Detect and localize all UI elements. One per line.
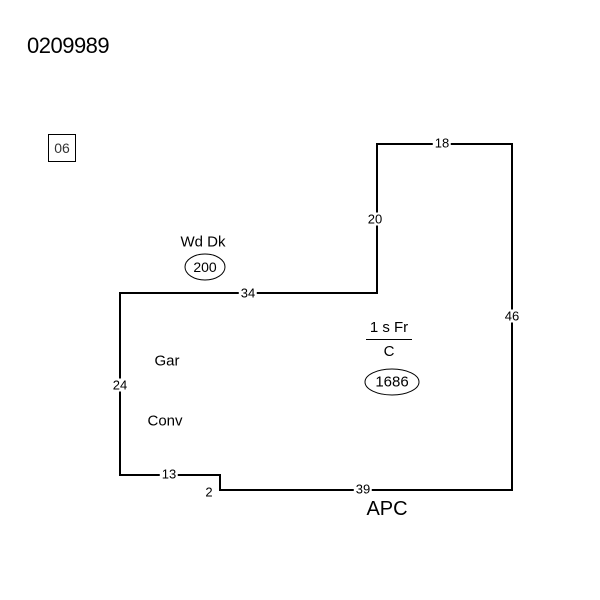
dimension-upper-vertical: 20 (366, 213, 384, 226)
dimension-bottom-left: 13 (160, 468, 178, 481)
dimension-right: 46 (503, 310, 521, 323)
sketch-page: 0209989 06 18 20 46 34 24 13 2 39 Wd Dk … (0, 0, 600, 600)
file-number: 0209989 (27, 33, 109, 59)
building-outline-path (120, 144, 512, 490)
building-outline-drawing (0, 0, 600, 600)
dimension-step: 2 (203, 486, 214, 499)
main-structure-label: 1 s Fr C (366, 320, 412, 359)
neighborhood-code-box: 06 (48, 134, 76, 162)
story-type-label: 1 s Fr (366, 320, 412, 340)
garage-label: Gar (154, 354, 179, 369)
porch-label: APC (366, 499, 407, 519)
foundation-type-label: C (366, 340, 412, 359)
conversion-label: Conv (147, 414, 182, 429)
dimension-middle-horizontal: 34 (239, 287, 257, 300)
dimension-bottom: 39 (354, 483, 372, 496)
neighborhood-code: 06 (54, 140, 70, 156)
deck-label: Wd Dk (181, 235, 226, 250)
dimension-left: 24 (111, 379, 129, 392)
main-area-value: 1686 (375, 375, 408, 390)
dimension-top: 18 (433, 137, 451, 150)
deck-area-value: 200 (193, 260, 216, 274)
